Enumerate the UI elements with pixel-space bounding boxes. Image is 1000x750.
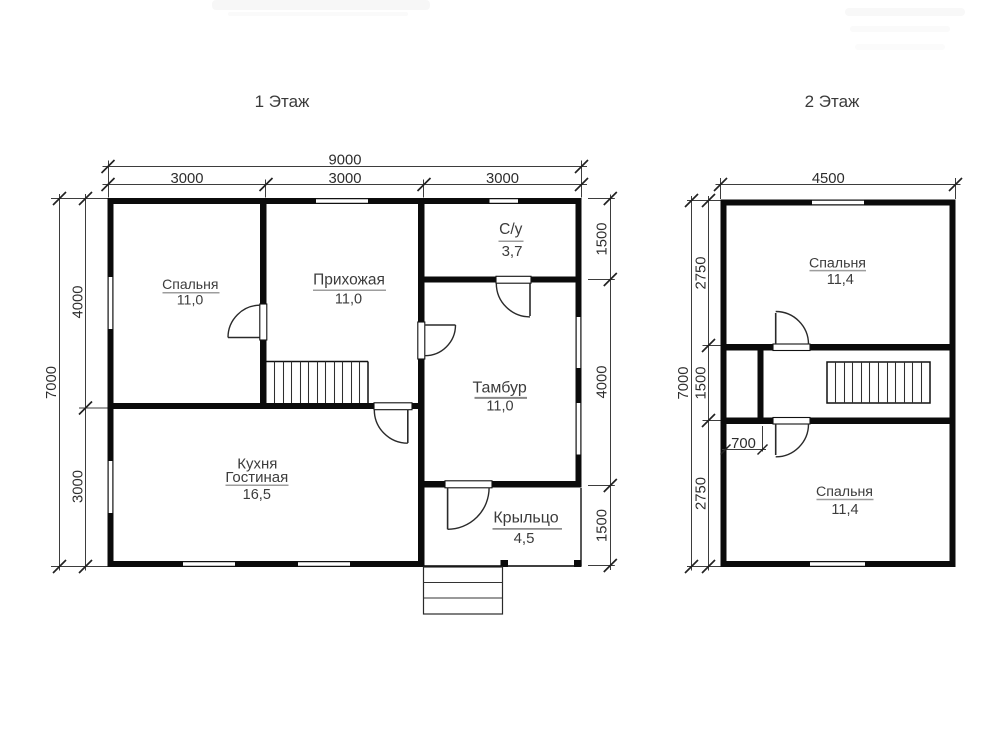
svg-text:9000: 9000 [329, 153, 362, 169]
svg-text:11,4: 11,4 [827, 272, 854, 288]
svg-text:16,5: 16,5 [243, 487, 271, 503]
svg-text:Тамбур: Тамбур [472, 380, 526, 397]
svg-text:Гостиная: Гостиная [225, 469, 288, 486]
svg-text:4000: 4000 [71, 286, 87, 319]
svg-text:2 Этаж: 2 Этаж [805, 92, 860, 111]
svg-text:11,0: 11,0 [177, 293, 204, 309]
svg-text:11,0: 11,0 [335, 292, 362, 308]
svg-text:С/у: С/у [499, 221, 523, 238]
svg-text:3000: 3000 [486, 171, 519, 187]
svg-text:2750: 2750 [694, 477, 710, 510]
svg-text:3000: 3000 [329, 171, 362, 187]
svg-text:11,0: 11,0 [486, 399, 513, 415]
svg-text:2750: 2750 [694, 257, 710, 290]
svg-text:3000: 3000 [171, 171, 204, 187]
svg-text:3000: 3000 [71, 470, 87, 503]
svg-text:1500: 1500 [595, 223, 611, 256]
svg-text:Спальня: Спальня [816, 484, 873, 500]
svg-text:Спальня: Спальня [162, 276, 218, 292]
svg-text:3,7: 3,7 [502, 243, 523, 260]
svg-text:Крыльцо: Крыльцо [493, 510, 558, 527]
svg-text:Прихожая: Прихожая [313, 272, 385, 289]
svg-text:7000: 7000 [44, 366, 60, 399]
svg-text:4500: 4500 [812, 171, 845, 187]
svg-text:4000: 4000 [595, 366, 611, 399]
svg-text:700: 700 [731, 436, 756, 452]
svg-text:7000: 7000 [676, 367, 692, 400]
svg-text:4,5: 4,5 [514, 530, 535, 547]
svg-text:Спальня: Спальня [809, 256, 866, 272]
svg-text:1500: 1500 [595, 509, 611, 542]
svg-text:11,4: 11,4 [831, 502, 858, 518]
svg-text:1 Этаж: 1 Этаж [255, 92, 310, 111]
svg-text:1500: 1500 [694, 367, 710, 400]
